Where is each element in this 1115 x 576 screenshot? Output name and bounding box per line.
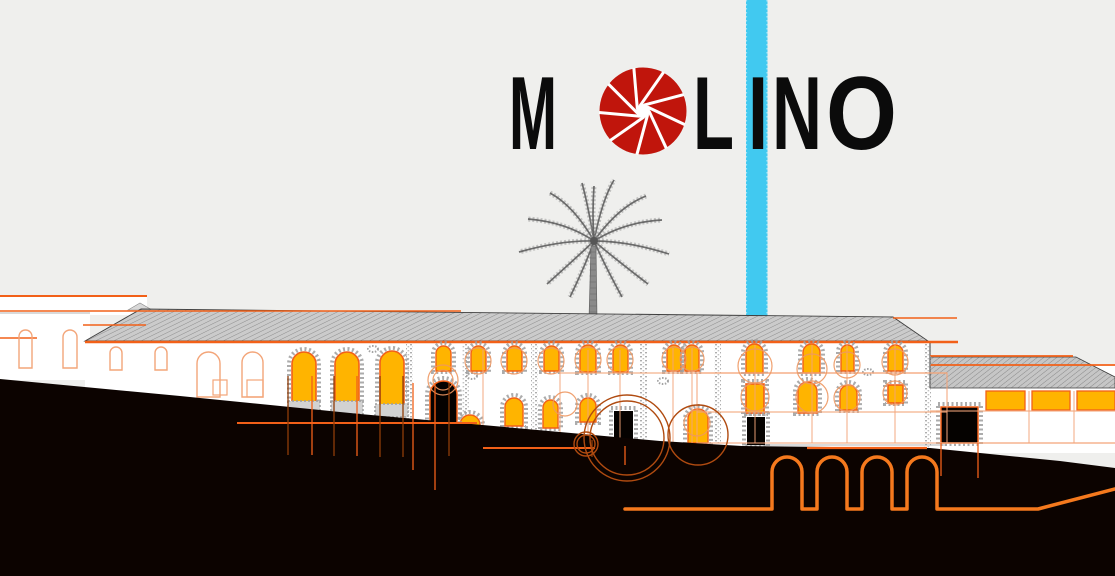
aperture-icon (599, 68, 686, 155)
logo-letter-i: I (748, 56, 768, 172)
illustration-canvas: MLINO (0, 0, 1115, 576)
poster: MLINO (0, 0, 1115, 576)
logo-letter-o: O (826, 56, 897, 172)
logo-letter-m: M (509, 56, 557, 172)
logo-letter-n: N (772, 56, 822, 172)
logo-letter-l: L (693, 56, 734, 172)
